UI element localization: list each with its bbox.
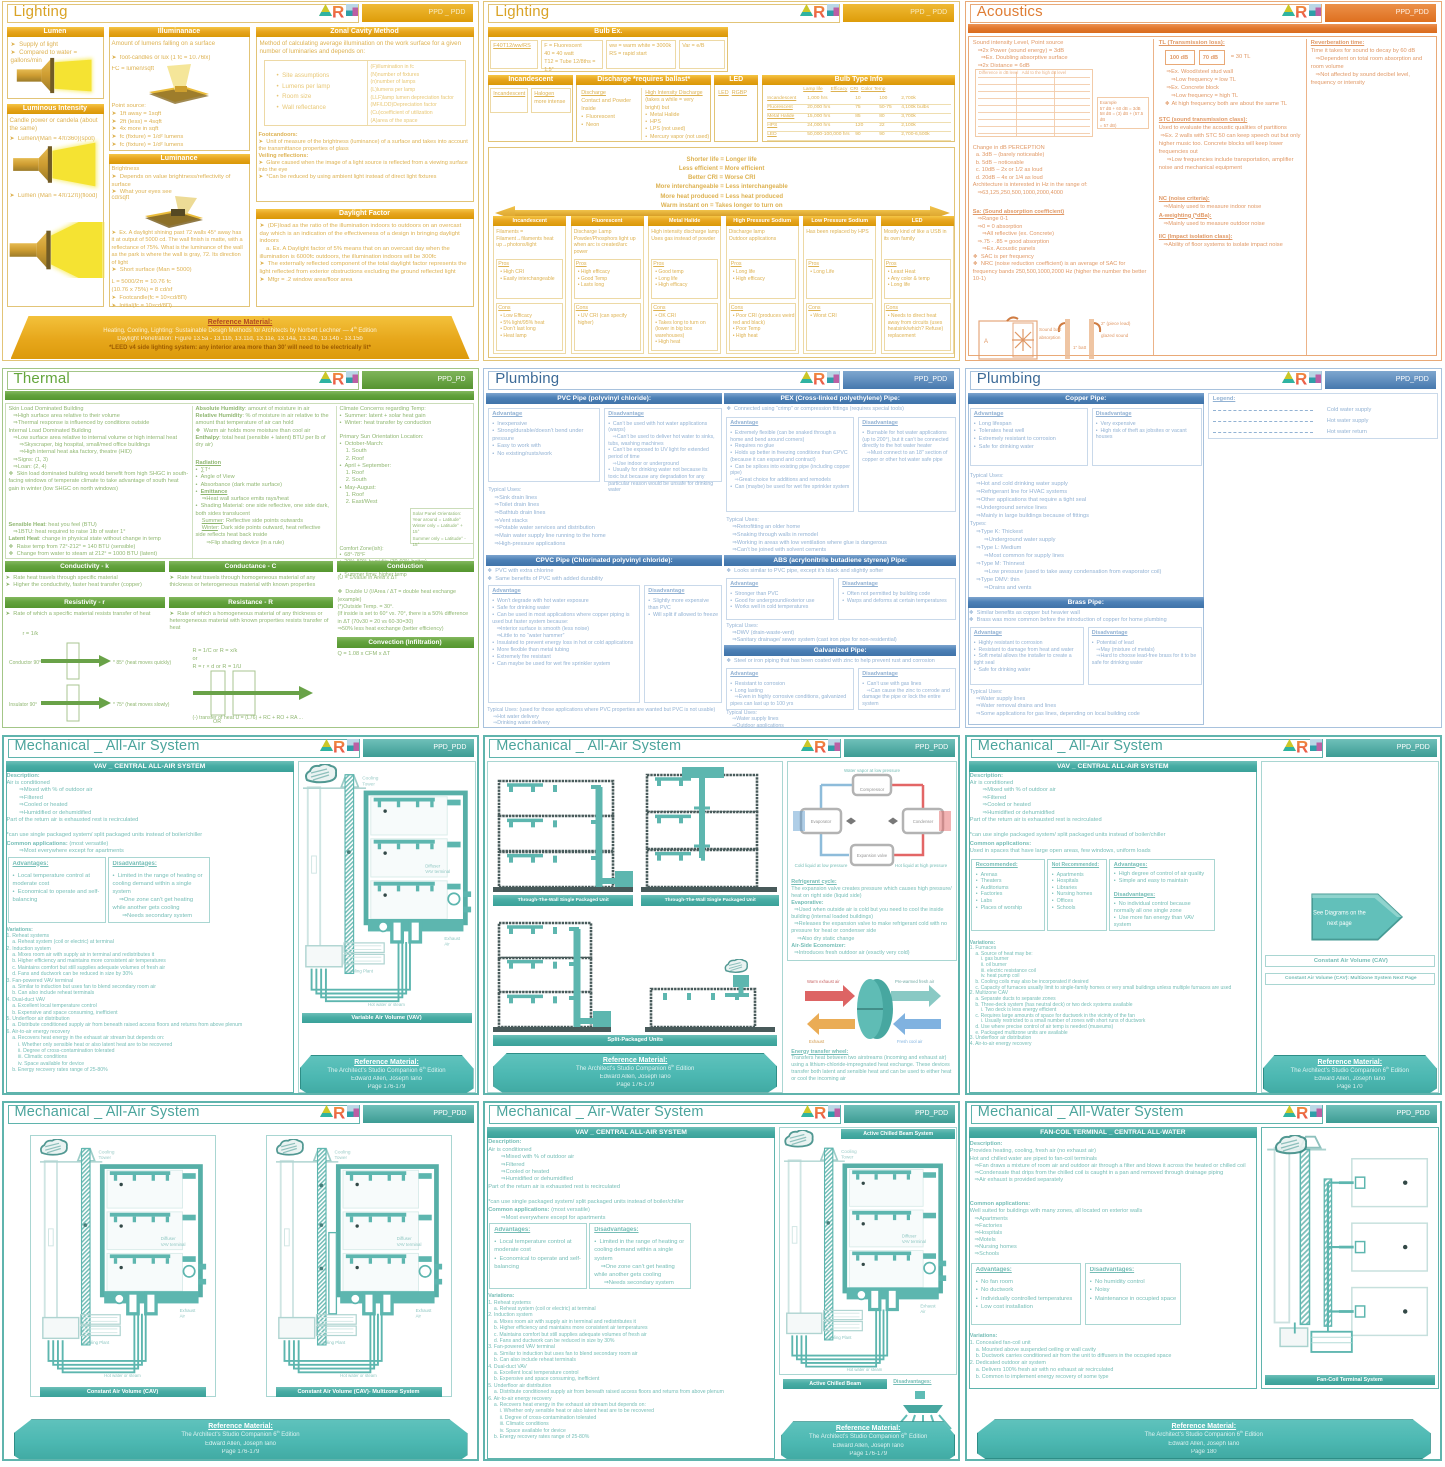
- svg-text:Cold liquid at low pressure: Cold liquid at low pressure: [795, 863, 848, 868]
- svg-text:Fresh cool air: Fresh cool air: [897, 1039, 923, 1044]
- svg-text:Warm exhaust air: Warm exhaust air: [807, 979, 840, 984]
- svg-text:Exhaust: Exhaust: [809, 1039, 825, 1044]
- svg-text:Conductor 90°: Conductor 90°: [9, 660, 41, 666]
- svg-text:2″ (piece lead): 2″ (piece lead): [1101, 321, 1131, 326]
- svg-text:VAV terminal: VAV terminal: [396, 1242, 421, 1247]
- svg-text:VAV terminal: VAV terminal: [902, 1239, 926, 1244]
- svg-text:Air: Air: [921, 1309, 927, 1314]
- svg-text:Exhaust: Exhaust: [921, 1304, 937, 1309]
- svg-text:Tower: Tower: [841, 1155, 854, 1160]
- svg-text:See Diagrams on the: See Diagrams on the: [1313, 910, 1366, 916]
- svg-text:Exhaust: Exhaust: [179, 1308, 195, 1313]
- svg-text:Diffuser: Diffuser: [160, 1236, 175, 1241]
- svg-text:R: R: [332, 371, 344, 388]
- svg-text:Evaporator: Evaporator: [811, 819, 832, 824]
- svg-text:Air: Air: [444, 941, 450, 946]
- svg-text:Air: Air: [179, 1314, 185, 1319]
- svg-text:Diffuser: Diffuser: [425, 863, 441, 868]
- svg-text:Expansion valve: Expansion valve: [857, 853, 888, 858]
- svg-text:Cooling: Cooling: [841, 1149, 857, 1154]
- svg-text:Cooling Plant: Cooling Plant: [83, 1340, 110, 1345]
- svg-text:R: R: [813, 371, 825, 388]
- svg-text:R: R: [1296, 1105, 1308, 1122]
- svg-text:glazed sound: glazed sound: [1101, 333, 1129, 338]
- svg-text:Hot water or steam: Hot water or steam: [847, 1368, 883, 1373]
- svg-text:Hot water or steam: Hot water or steam: [340, 1373, 377, 1378]
- svg-text:Cooling: Cooling: [362, 775, 379, 781]
- svg-text:VAV terminal: VAV terminal: [160, 1242, 185, 1247]
- svg-text:Tower: Tower: [98, 1155, 111, 1160]
- svg-text:Hot water or steam: Hot water or steam: [367, 1001, 404, 1006]
- svg-text:* 85° (heat moves quickly): * 85° (heat moves quickly): [113, 660, 171, 666]
- svg-text:A: A: [984, 339, 988, 345]
- svg-text:R: R: [332, 4, 344, 21]
- svg-text:absorption: absorption: [1039, 335, 1061, 340]
- svg-text:Diffuser: Diffuser: [396, 1236, 411, 1241]
- svg-text:Cooling: Cooling: [334, 1150, 350, 1155]
- svg-text:Exhaust: Exhaust: [415, 1308, 431, 1313]
- svg-text:Water vapor at low pressure: Water vapor at low pressure: [844, 768, 901, 773]
- svg-text:Cooling Plant: Cooling Plant: [319, 1340, 346, 1345]
- svg-text:Exhaust: Exhaust: [444, 936, 461, 941]
- svg-text:Air: Air: [415, 1314, 421, 1319]
- svg-text:Insulator 90°: Insulator 90°: [9, 702, 37, 708]
- svg-text:Tower: Tower: [362, 781, 375, 787]
- svg-text:Pre-warmed fresh air: Pre-warmed fresh air: [895, 979, 935, 984]
- svg-text:Diffuser: Diffuser: [902, 1234, 917, 1239]
- svg-text:R: R: [1296, 739, 1308, 756]
- svg-text:* 75° (heat moves slowly): * 75° (heat moves slowly): [113, 702, 170, 708]
- svg-text:R: R: [1295, 4, 1307, 21]
- svg-text:R: R: [333, 1105, 345, 1122]
- svg-text:R: R: [1295, 371, 1307, 388]
- svg-text:Cooling: Cooling: [98, 1150, 114, 1155]
- svg-text:Condenser: Condenser: [913, 819, 934, 824]
- svg-text:Hot liquid at high pressure: Hot liquid at high pressure: [895, 863, 948, 868]
- svg-text:Cooling Plant: Cooling Plant: [346, 968, 373, 973]
- svg-text:Cooling Plant: Cooling Plant: [827, 1335, 853, 1340]
- svg-text:R: R: [813, 4, 825, 21]
- svg-text:next page: next page: [1327, 920, 1352, 926]
- svg-text:R: R: [814, 739, 826, 756]
- svg-text:R: R: [333, 739, 345, 756]
- svg-text:R: R: [814, 1105, 826, 1122]
- svg-text:Tower: Tower: [334, 1155, 347, 1160]
- svg-text:Sound batt: Sound batt: [1039, 327, 1062, 332]
- svg-text:1″ batt: 1″ batt: [1073, 345, 1087, 350]
- svg-text:Compressor: Compressor: [860, 787, 885, 792]
- svg-text:VAV terminal: VAV terminal: [425, 869, 450, 874]
- svg-text:Hot water or steam: Hot water or steam: [104, 1373, 141, 1378]
